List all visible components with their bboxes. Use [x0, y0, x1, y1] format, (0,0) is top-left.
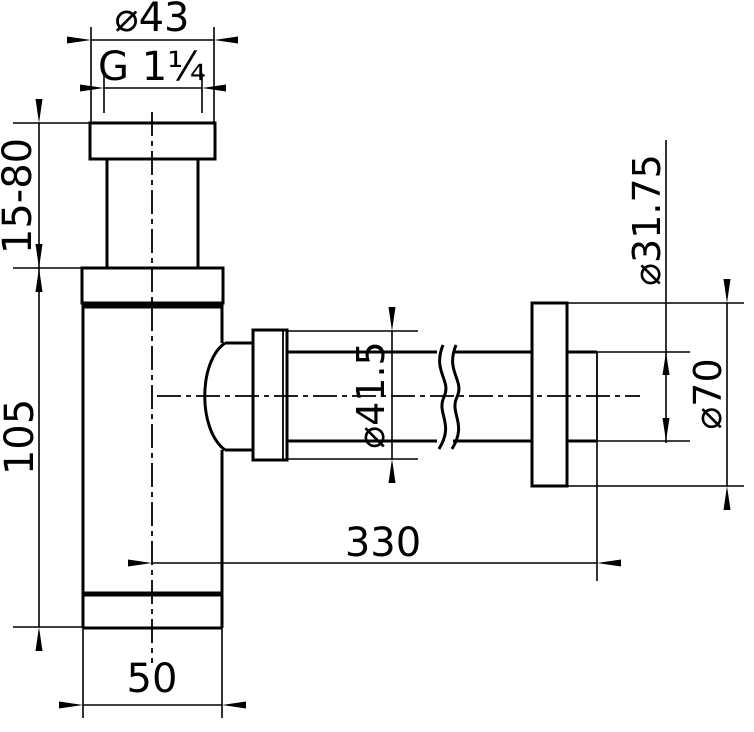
dim-outlet-reach: 330: [152, 441, 597, 581]
technical-drawing-canvas: ⌀43 G 1¼ 15-80 105 ⌀41.5 ⌀31.75: [0, 0, 754, 732]
arrowhead-up: [663, 352, 670, 375]
dimension-label: ⌀41.5: [349, 341, 393, 449]
dimension-label: ⌀43: [115, 0, 190, 41]
dim-body-height: 105: [0, 268, 84, 627]
pipe-break-curve-right: [452, 345, 459, 449]
dimension-label: ⌀31.75: [625, 154, 669, 286]
bottle-trap-dimension-drawing: ⌀43 G 1¼ 15-80 105 ⌀41.5 ⌀31.75: [0, 0, 754, 732]
dimension-label: 50: [127, 656, 178, 702]
outlet-nut: [253, 330, 287, 460]
trap-body: [82, 123, 597, 628]
dim-wall-flange-od: ⌀70: [567, 303, 744, 486]
dimension-label: ⌀70: [686, 358, 730, 429]
dim-inlet-adjust-range: 15-80: [0, 123, 90, 268]
dimension-label: 105: [0, 399, 43, 475]
dim-outlet-pipe-od: ⌀31.75: [597, 140, 690, 443]
dim-inlet-thread: G 1¼: [98, 44, 206, 113]
dimension-label: 330: [345, 520, 421, 566]
pipe-break-curve-left: [439, 345, 446, 449]
arrowhead-down: [663, 418, 670, 441]
wall-flange: [532, 303, 567, 486]
dimension-label: 15-80: [0, 138, 41, 254]
dimension-label: G 1¼: [98, 44, 206, 90]
